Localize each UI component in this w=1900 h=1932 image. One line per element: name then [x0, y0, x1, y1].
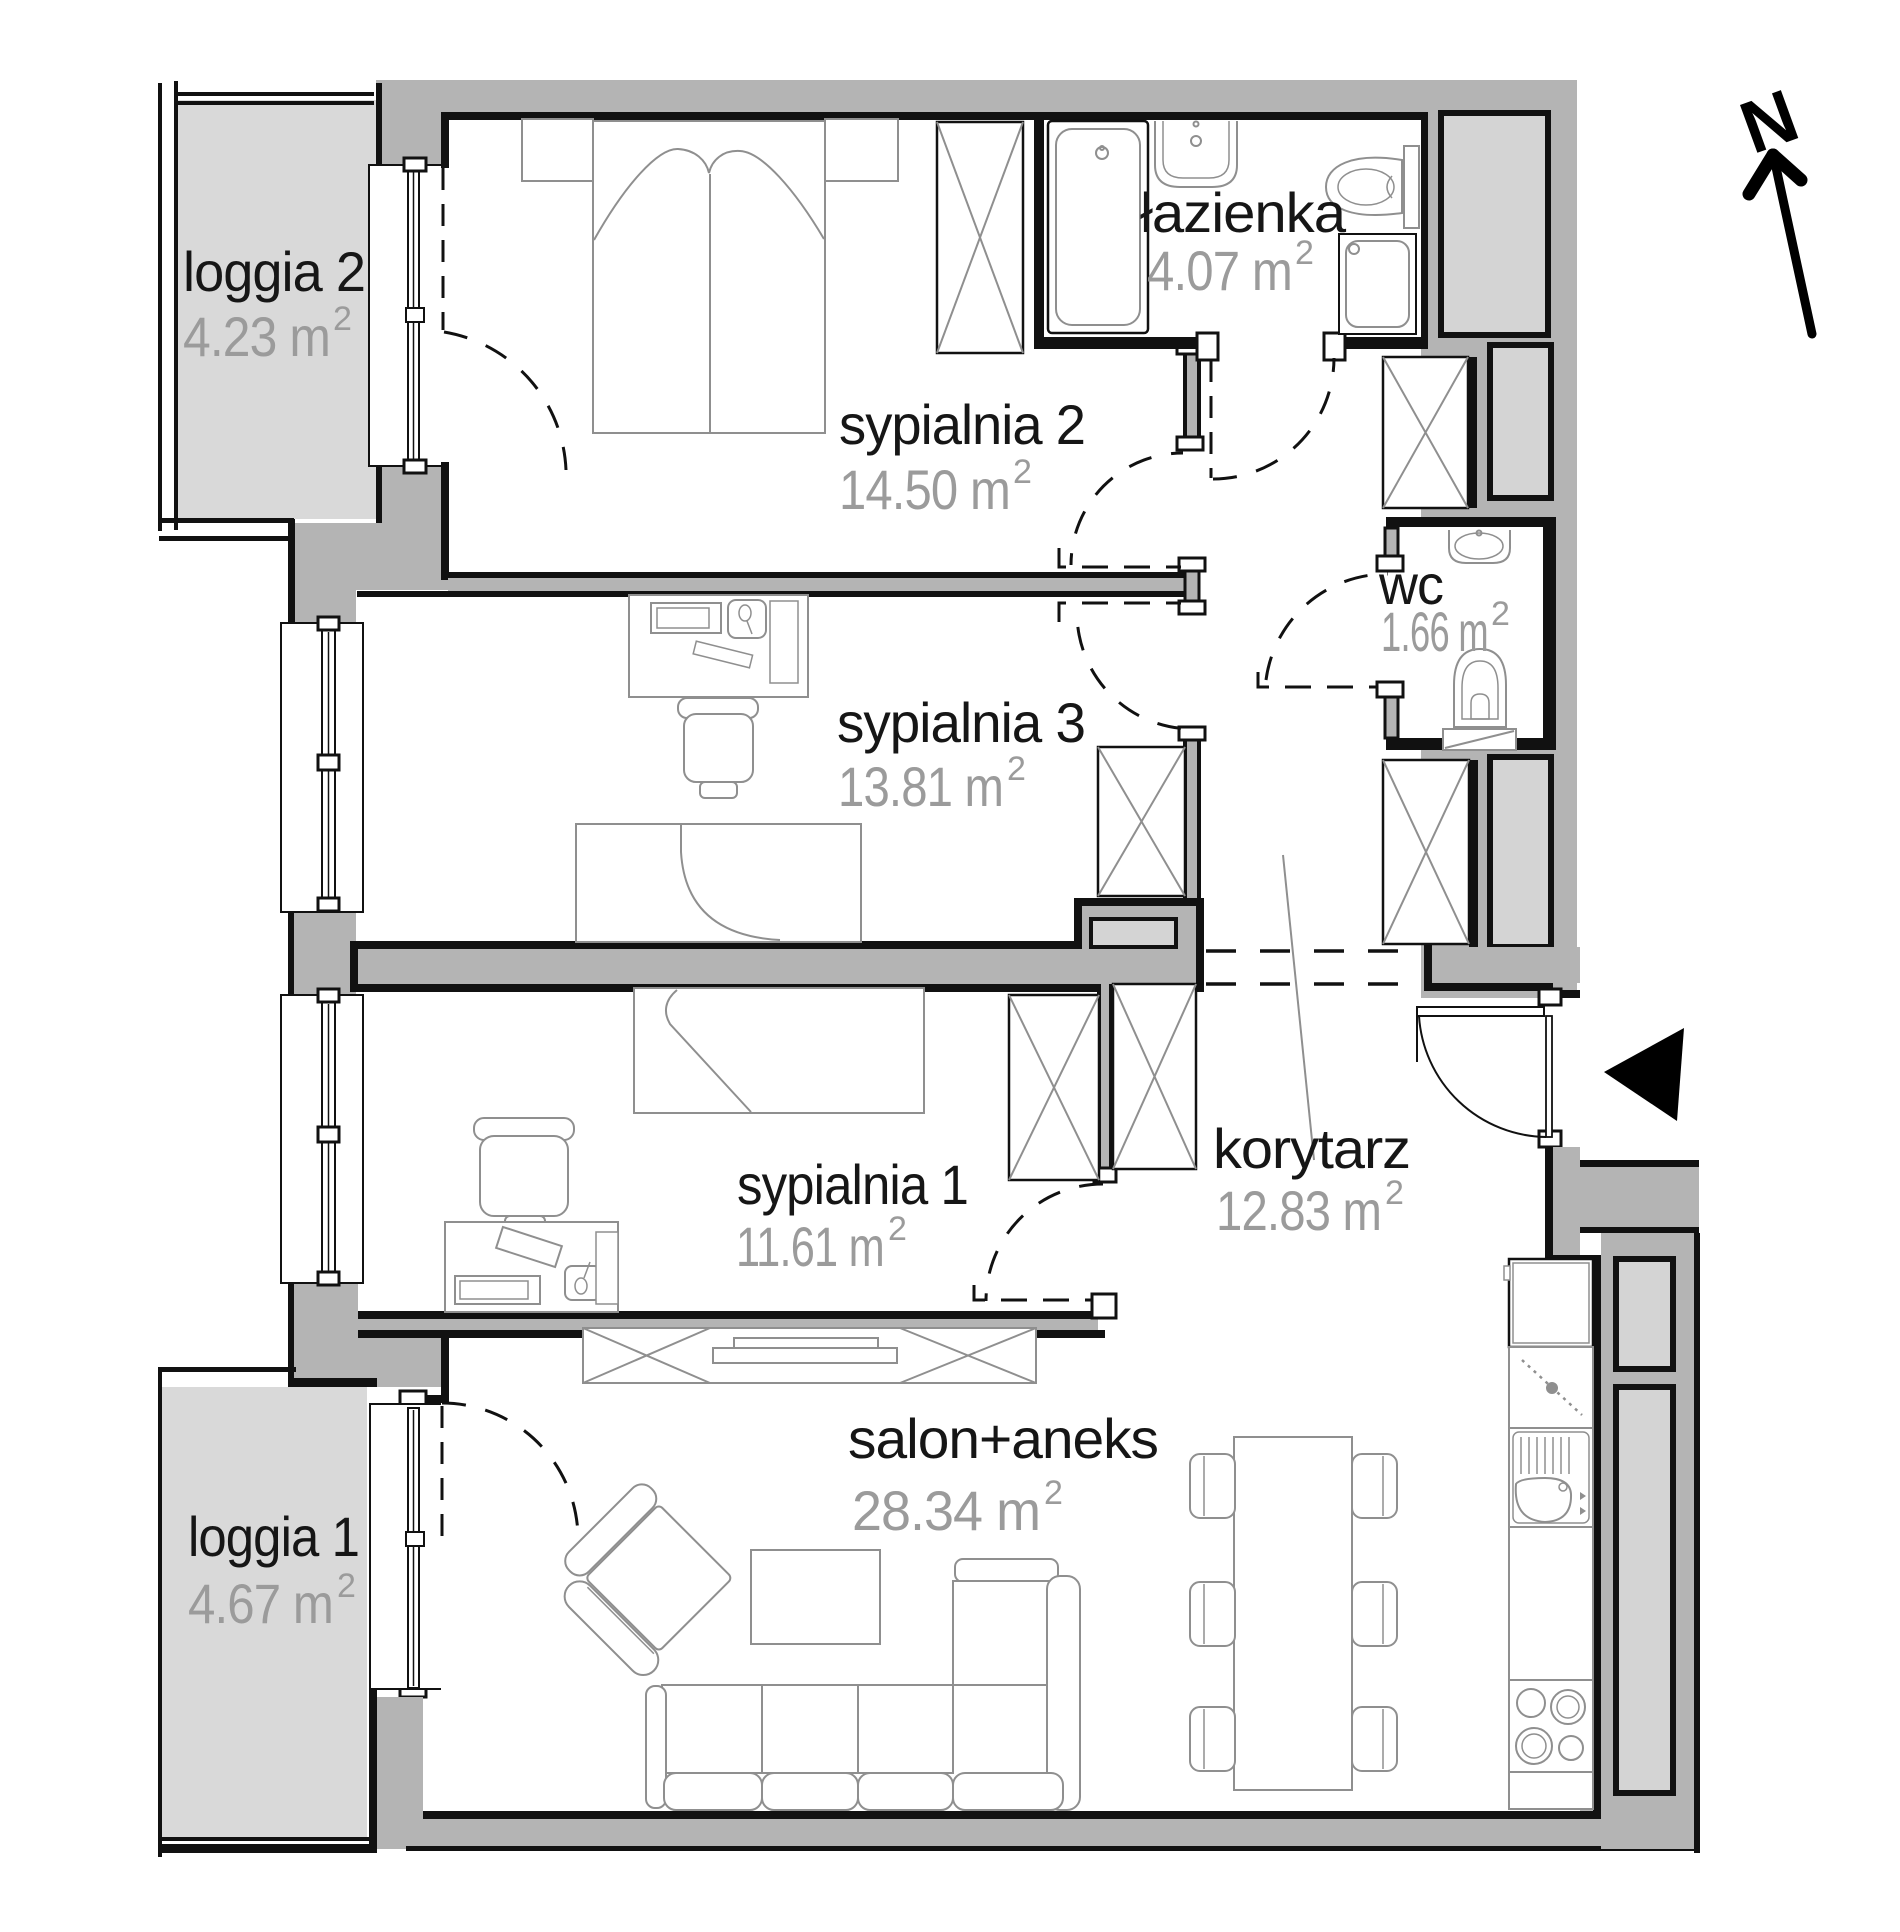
svg-text:14.50 m: 14.50 m — [839, 458, 1010, 521]
svg-text:loggia 2: loggia 2 — [183, 240, 365, 303]
svg-text:sypialnia 2: sypialnia 2 — [839, 393, 1085, 456]
svg-text:2: 2 — [333, 300, 352, 338]
svg-text:salon+aneks: salon+aneks — [848, 1407, 1158, 1470]
svg-text:loggia 1: loggia 1 — [188, 1505, 359, 1568]
svg-text:4.67 m: 4.67 m — [188, 1572, 333, 1635]
svg-text:łazienka: łazienka — [1140, 181, 1347, 244]
svg-text:4.07 m: 4.07 m — [1147, 239, 1292, 302]
svg-text:2: 2 — [1007, 750, 1026, 788]
svg-text:11.61 m: 11.61 m — [736, 1215, 884, 1278]
svg-text:korytarz: korytarz — [1213, 1117, 1410, 1180]
svg-text:1.66 m: 1.66 m — [1381, 600, 1488, 663]
svg-text:4.23 m: 4.23 m — [183, 305, 330, 368]
svg-text:2: 2 — [1013, 453, 1032, 491]
svg-text:sypialnia 3: sypialnia 3 — [837, 691, 1085, 754]
svg-text:2: 2 — [1491, 595, 1510, 633]
svg-text:28.34 m: 28.34 m — [852, 1479, 1040, 1542]
svg-text:2: 2 — [337, 1567, 356, 1605]
svg-text:2: 2 — [1044, 1474, 1063, 1512]
svg-text:sypialnia 1: sypialnia 1 — [737, 1153, 968, 1216]
svg-text:13.81 m: 13.81 m — [838, 755, 1003, 818]
svg-text:12.83 m: 12.83 m — [1216, 1179, 1381, 1242]
svg-text:2: 2 — [888, 1210, 907, 1248]
svg-text:2: 2 — [1385, 1174, 1404, 1212]
svg-text:2: 2 — [1295, 234, 1314, 272]
